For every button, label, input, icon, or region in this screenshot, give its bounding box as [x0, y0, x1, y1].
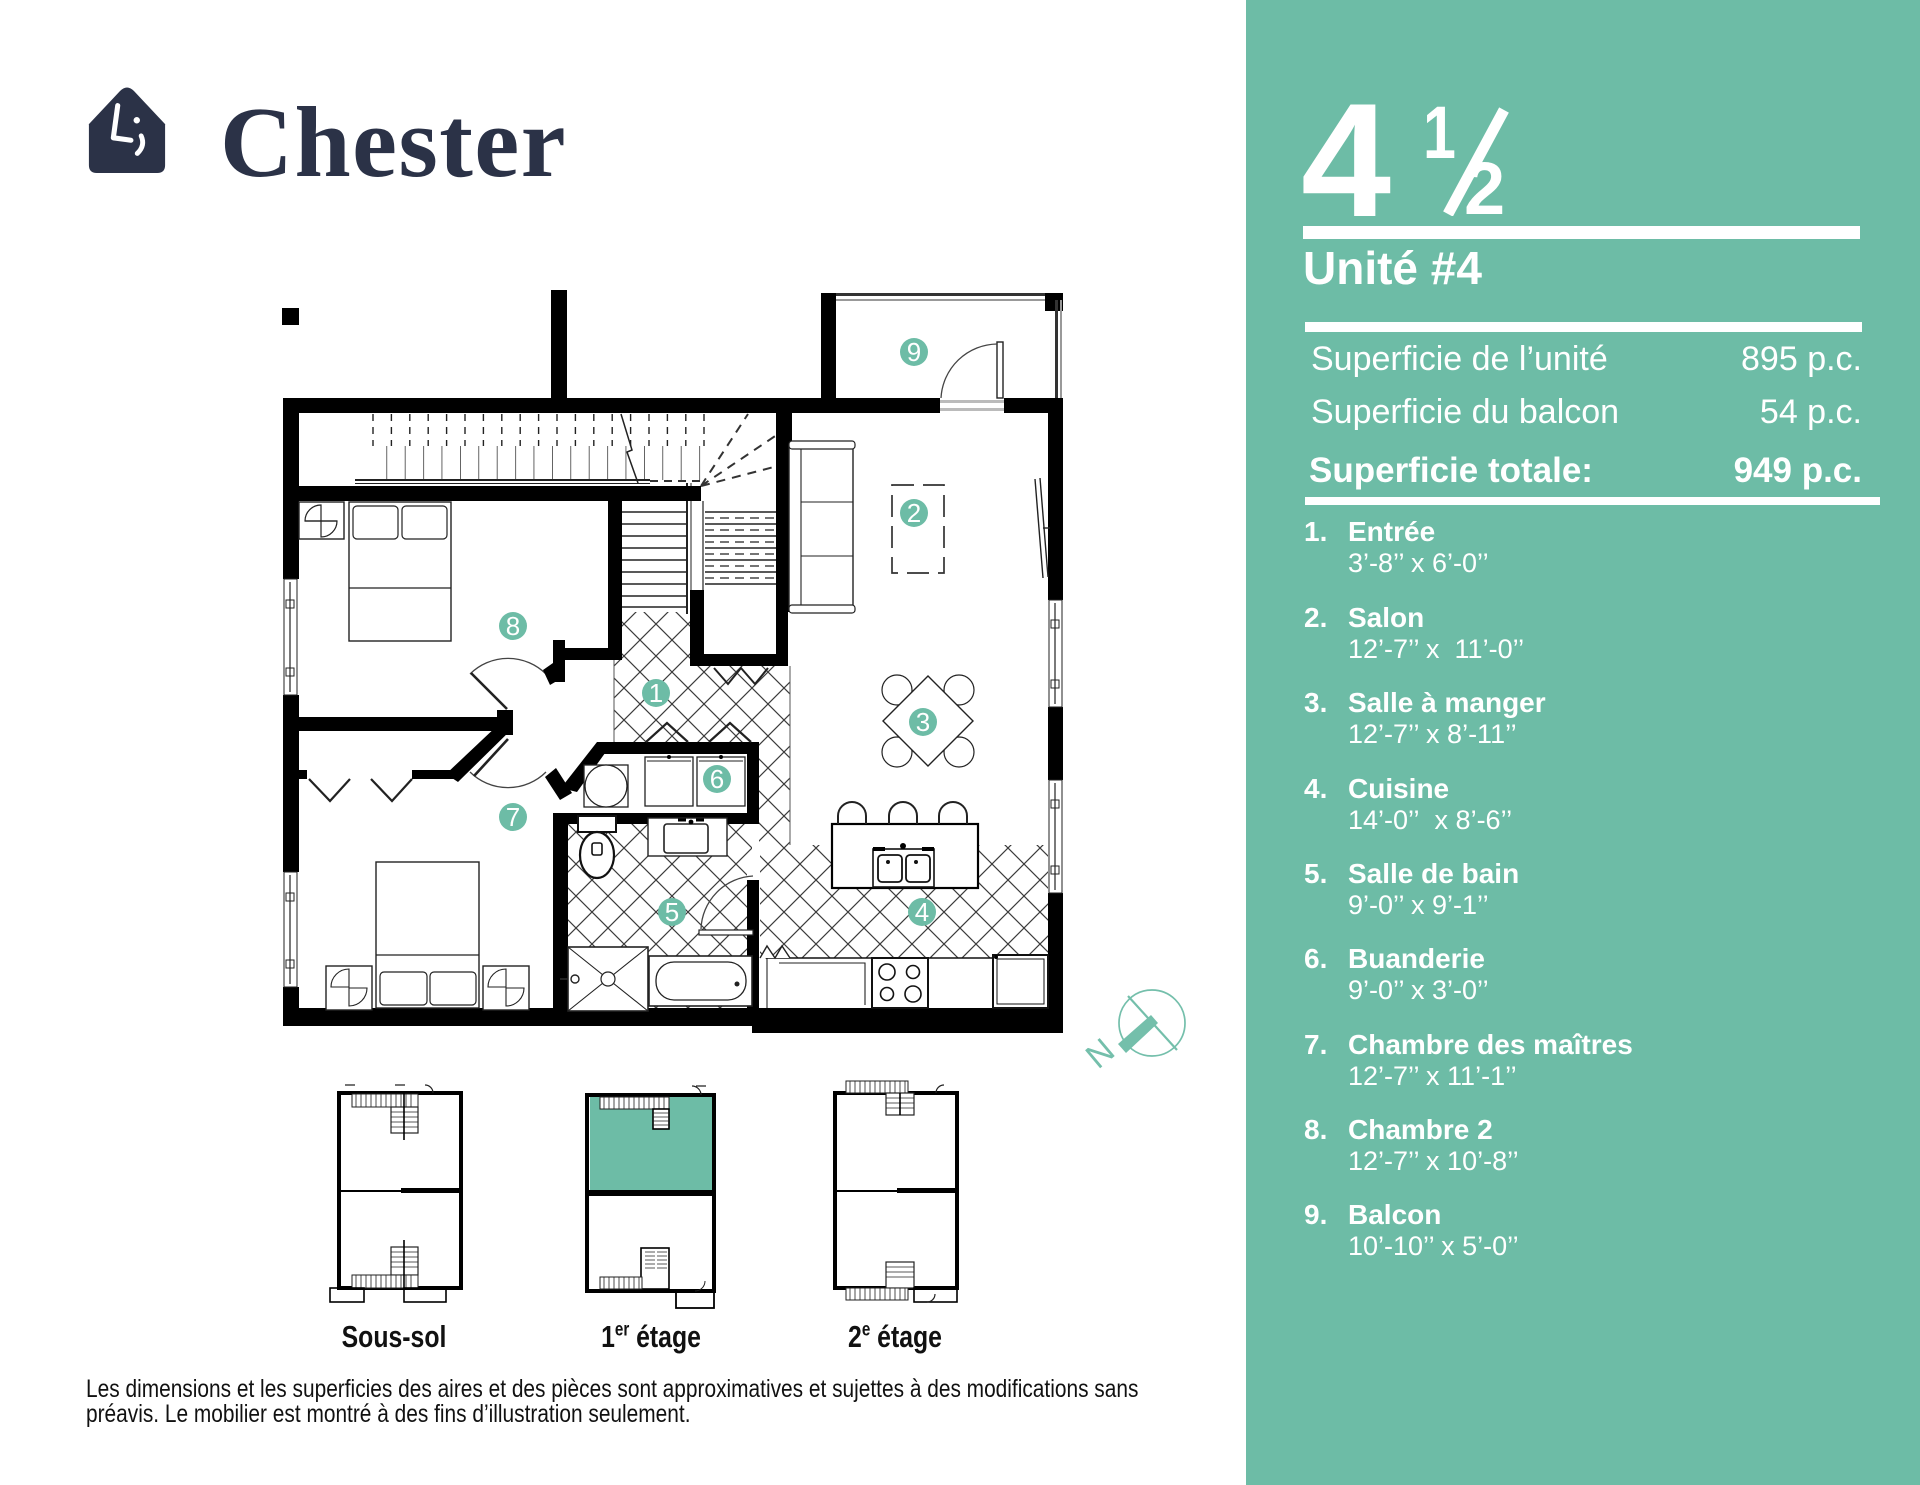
svg-text:1: 1 — [649, 678, 663, 708]
svg-text:3: 3 — [916, 707, 930, 737]
svg-text:9: 9 — [907, 337, 921, 367]
svg-text:5: 5 — [665, 897, 679, 927]
svg-text:2: 2 — [907, 498, 921, 528]
svg-text:4: 4 — [915, 897, 929, 927]
svg-text:N: N — [1079, 1031, 1122, 1076]
svg-text:7: 7 — [506, 802, 520, 832]
svg-text:8: 8 — [506, 611, 520, 641]
svg-text:6: 6 — [710, 764, 724, 794]
